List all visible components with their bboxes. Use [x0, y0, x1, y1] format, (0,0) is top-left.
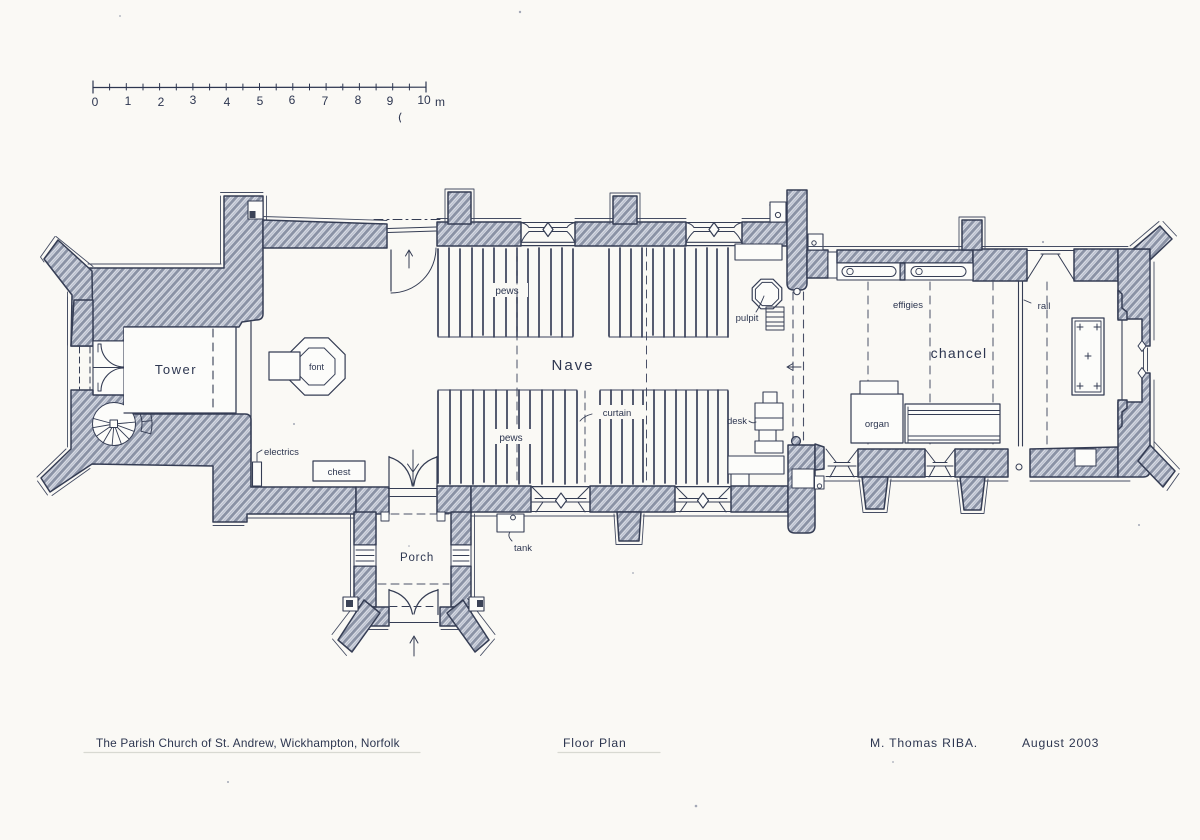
svg-text:August 2003: August 2003	[1022, 736, 1099, 750]
svg-text:chest: chest	[328, 467, 351, 478]
svg-text:M. Thomas RIBA.: M. Thomas RIBA.	[870, 736, 978, 750]
svg-text:Floor Plan: Floor Plan	[563, 736, 627, 750]
svg-text:curtain: curtain	[603, 408, 632, 419]
svg-text:pews: pews	[499, 433, 522, 444]
svg-text:2: 2	[158, 95, 165, 109]
svg-text:8: 8	[355, 93, 362, 107]
svg-text:font: font	[309, 362, 325, 372]
svg-text:Tower: Tower	[155, 362, 197, 377]
svg-text:6: 6	[289, 93, 296, 107]
svg-text:4: 4	[224, 95, 231, 109]
svg-text:1: 1	[125, 94, 132, 108]
svg-text:Porch: Porch	[400, 552, 434, 564]
svg-text:m: m	[435, 95, 445, 109]
svg-text:effigies: effigies	[893, 300, 923, 311]
svg-text:pulpit: pulpit	[736, 313, 759, 324]
svg-text:tank: tank	[514, 543, 532, 554]
svg-text:The Parish Church of St. Andre: The Parish Church of St. Andrew, Wickham…	[96, 736, 400, 750]
svg-text:10: 10	[417, 93, 431, 107]
svg-text:0: 0	[92, 95, 99, 109]
svg-text:3: 3	[190, 93, 197, 107]
svg-text:desk: desk	[727, 416, 747, 427]
svg-text:5: 5	[257, 94, 264, 108]
svg-text:organ: organ	[865, 419, 889, 430]
svg-text:9: 9	[387, 94, 394, 108]
svg-text:Nave: Nave	[551, 357, 594, 374]
svg-text:electrics: electrics	[264, 447, 299, 458]
svg-text:rail: rail	[1038, 301, 1051, 312]
svg-text:chancel: chancel	[931, 345, 988, 361]
svg-text:pews: pews	[495, 286, 518, 297]
svg-text:7: 7	[322, 94, 329, 108]
